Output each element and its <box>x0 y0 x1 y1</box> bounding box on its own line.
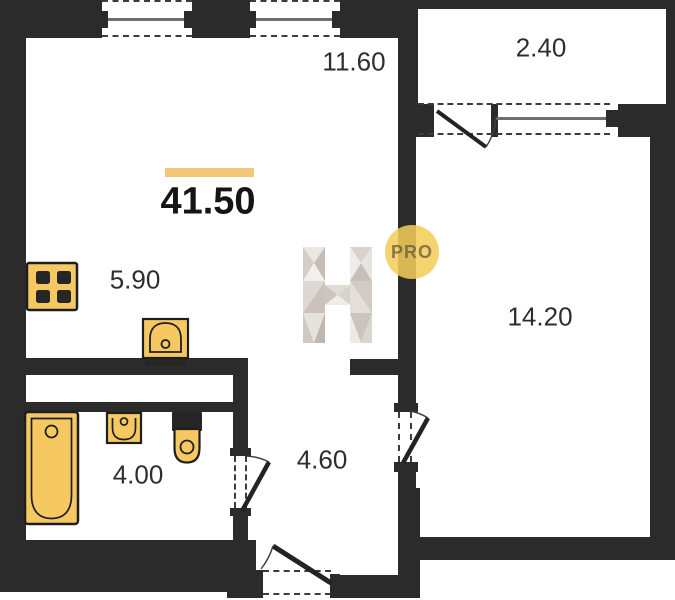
room-area-bathroom: 4.00 <box>113 460 164 491</box>
room-area-balcony: 2.40 <box>516 33 567 64</box>
pro-badge: PRO <box>385 225 439 279</box>
pro-badge-label: PRO <box>391 242 433 263</box>
bathtub-icon <box>25 412 78 524</box>
total-area-label: 41.50 <box>160 181 255 224</box>
stove-icon <box>27 263 77 310</box>
washbasin-icon <box>107 413 141 443</box>
room-area-hallway: 4.60 <box>297 445 348 476</box>
room-area-kitchen-zone: 5.90 <box>110 265 161 296</box>
room-area-kitchen-living: 11.60 <box>322 47 385 78</box>
room-area-bedroom: 14.20 <box>507 302 572 333</box>
floor-plan: PRO 41.50 11.60 2.40 5.90 14.20 4.00 4.6… <box>0 0 675 600</box>
toilet-icon <box>172 412 202 463</box>
fixtures-layer <box>0 0 675 600</box>
total-area-accent-bar <box>165 168 254 177</box>
kitchen-sink-icon <box>143 319 188 366</box>
